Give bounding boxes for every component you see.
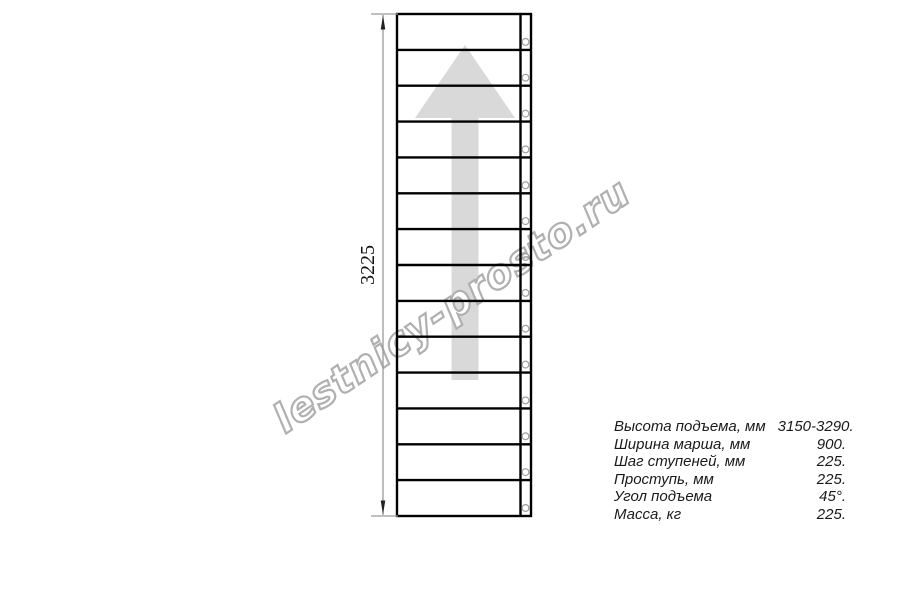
spec-value: 225. <box>805 506 846 524</box>
bolt-hole-icon <box>522 146 529 153</box>
bolt-hole-icon <box>522 505 529 512</box>
spec-label: Высота подъема, мм <box>614 418 766 436</box>
bolt-hole-icon <box>522 182 529 189</box>
bolt-hole-icon <box>522 74 529 81</box>
dimension-arrow-up-icon <box>381 16 386 30</box>
bolt-hole-icon <box>522 469 529 476</box>
canvas: lestnicy-prosto.ru <box>0 0 900 600</box>
bolt-hole-icon <box>522 218 529 225</box>
step-lines <box>397 50 531 480</box>
spec-row: Ширина марша, мм 900. <box>614 436 846 454</box>
spec-label: Проступь, мм <box>614 471 714 489</box>
bolt-hole-icon <box>522 397 529 404</box>
bolt-hole-icon <box>522 325 529 332</box>
spec-row: Угол подъема 45°. <box>614 488 846 506</box>
spec-value: 3150-3290. <box>766 418 854 436</box>
spec-value: 225. <box>805 471 846 489</box>
spec-value: 225. <box>805 453 846 471</box>
spec-row: Шаг ступеней, мм 225. <box>614 453 846 471</box>
bolt-hole-icon <box>522 110 529 117</box>
spec-row: Высота подъема, мм 3150-3290. <box>614 418 846 436</box>
bolt-hole-icon <box>522 433 529 440</box>
spec-label: Угол подъема <box>614 488 712 506</box>
spec-label: Шаг ступеней, мм <box>614 453 745 471</box>
dimension: 3225 <box>357 14 398 516</box>
spec-value: 900. <box>805 436 846 454</box>
dimension-arrow-down-icon <box>381 501 386 515</box>
bolt-hole-icon <box>522 39 529 46</box>
bolt-hole-icon <box>522 254 529 261</box>
bolt-holes <box>522 39 529 512</box>
spec-label: Ширина марша, мм <box>614 436 750 454</box>
spec-row: Масса, кг 225. <box>614 506 846 524</box>
dimension-label: 3225 <box>357 245 379 285</box>
bolt-hole-icon <box>522 361 529 368</box>
spec-value: 45°. <box>807 488 846 506</box>
spec-row: Проступь, мм 225. <box>614 471 846 489</box>
spec-label: Масса, кг <box>614 506 681 524</box>
spec-table: Высота подъема, мм 3150-3290. Ширина мар… <box>614 418 846 523</box>
bolt-hole-icon <box>522 290 529 297</box>
